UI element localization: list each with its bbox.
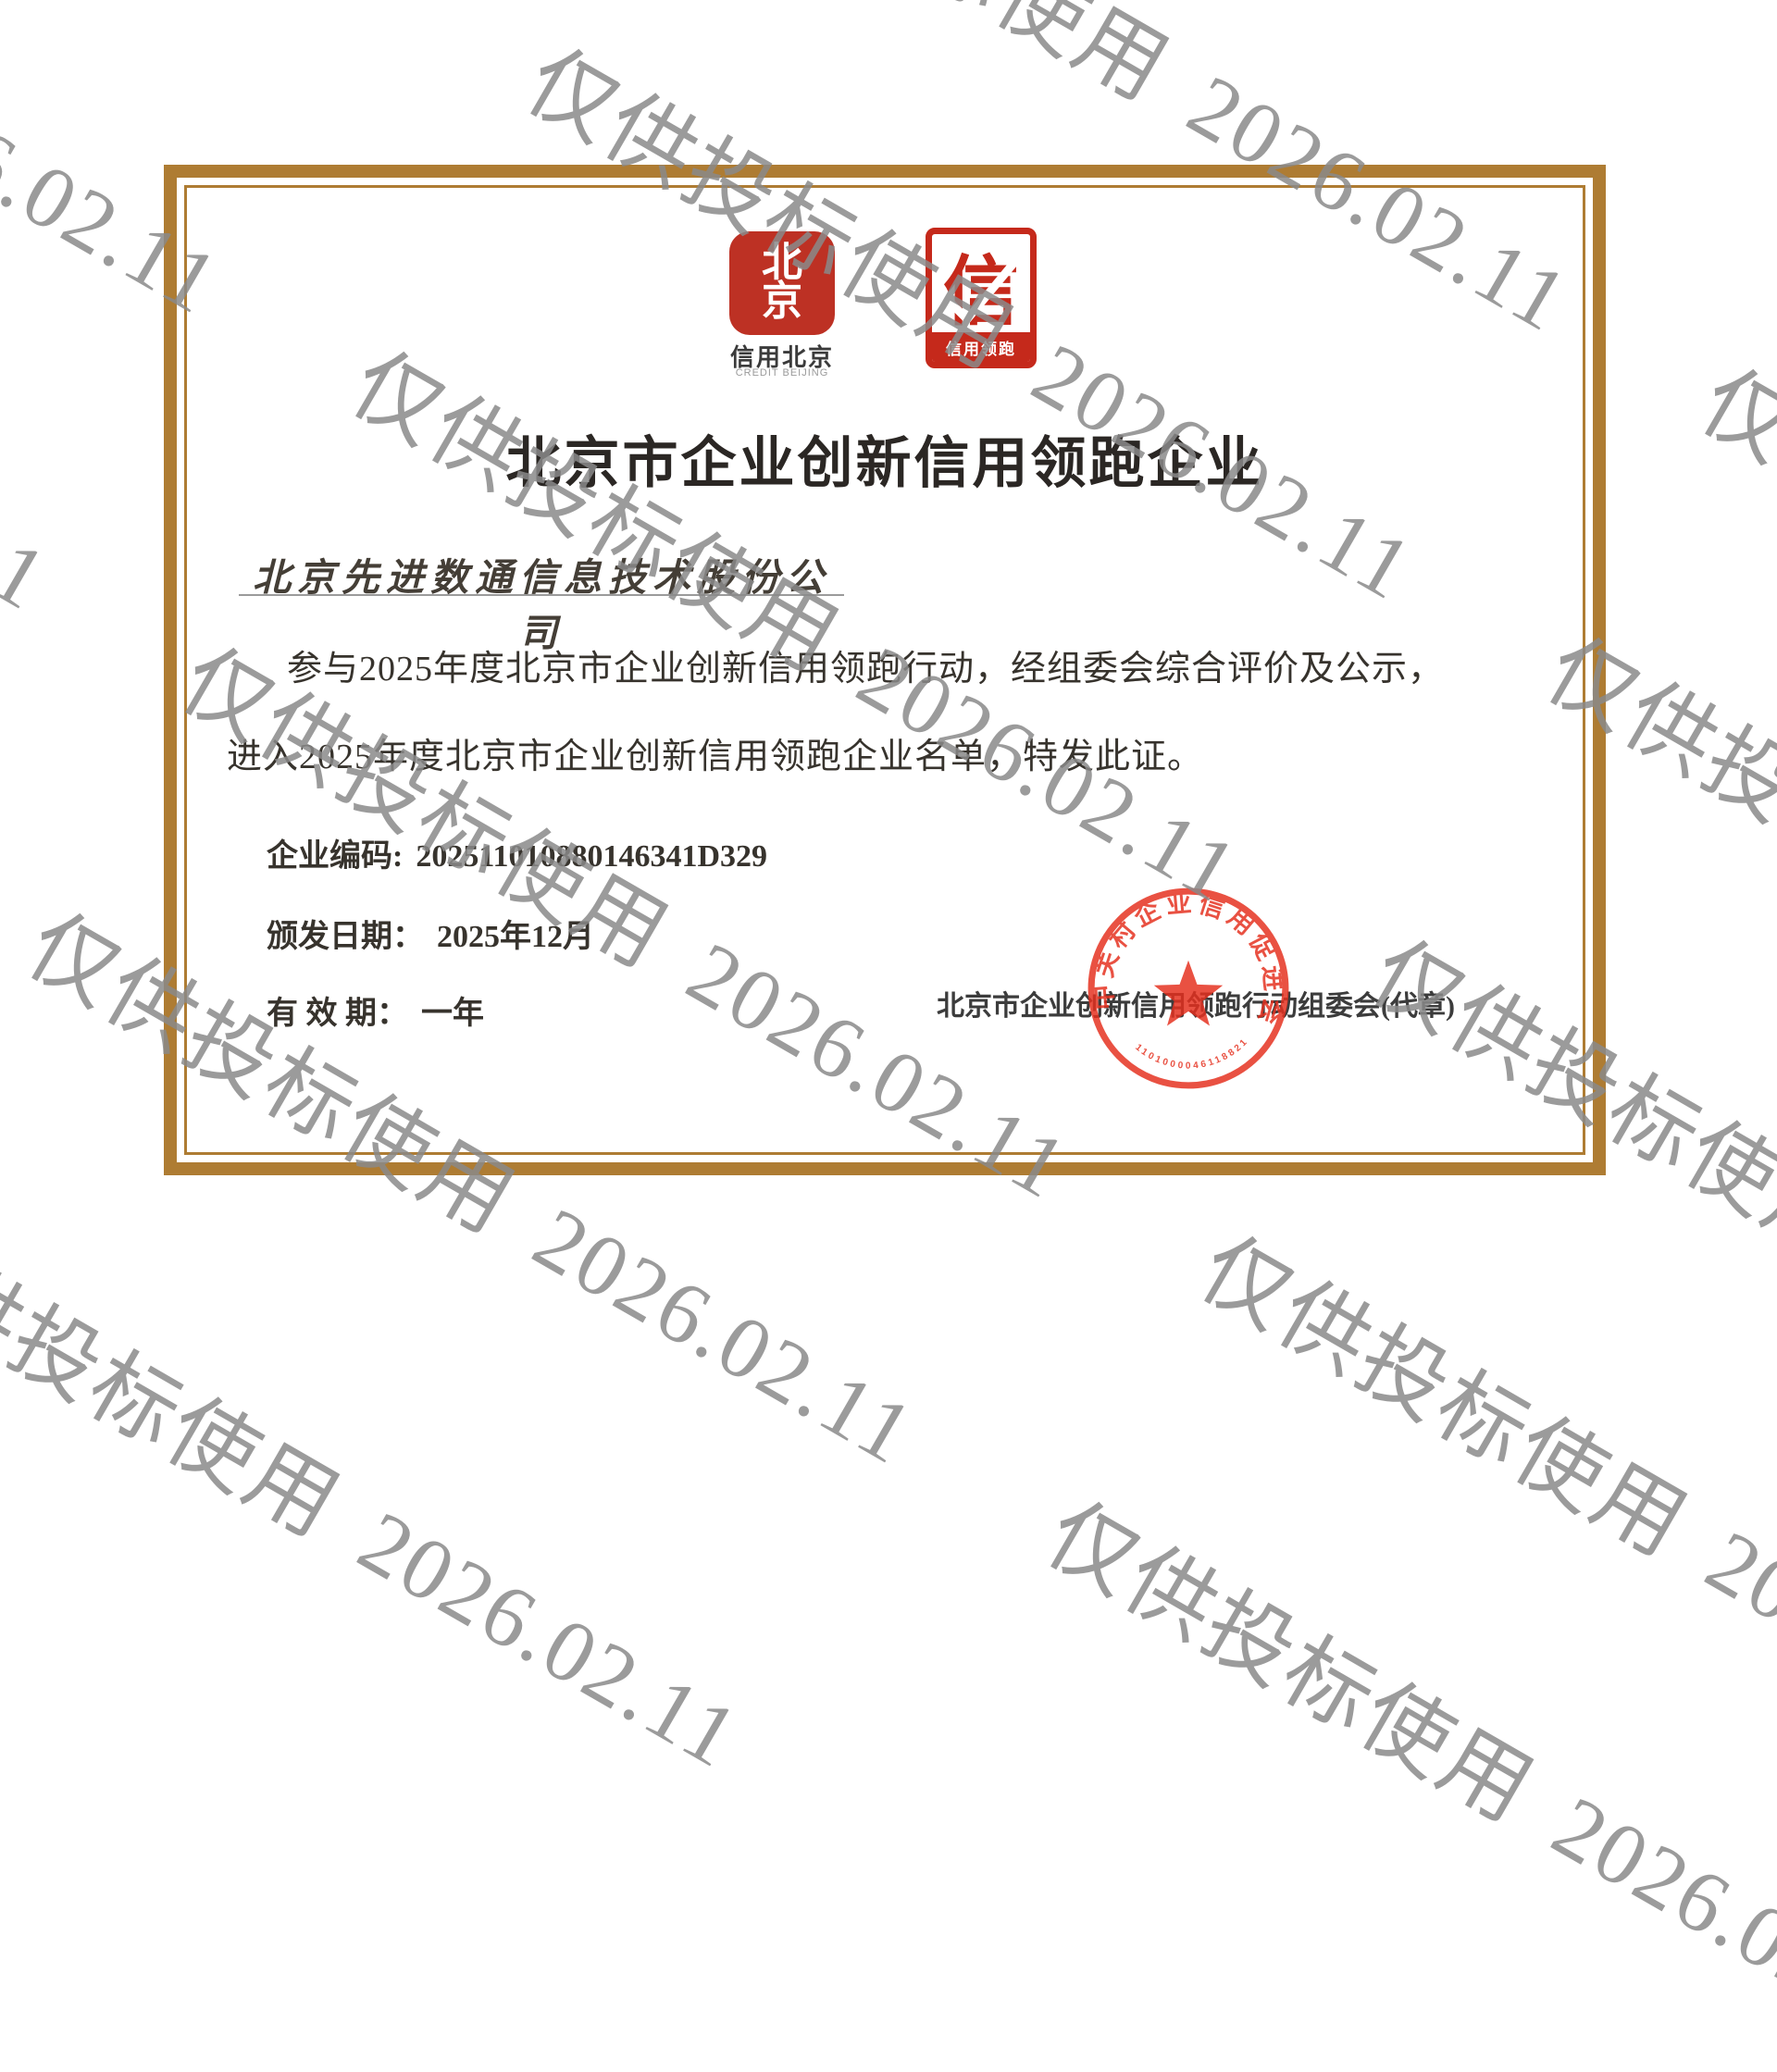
credit-leader-logo-icon: 信 信用领跑: [926, 228, 1037, 368]
enterprise-code-label: 企业编码:: [267, 839, 403, 874]
credit-beijing-logo-icon: 北 京: [729, 231, 835, 335]
credit-leader-label: 信用领跑: [932, 332, 1030, 362]
watermark-text: 仅供投标使用 2026.02.11: [1033, 1489, 1777, 2068]
logo-glyph-top: 北: [762, 244, 802, 281]
watermark-text: 仅供投标使用 2026.02.11: [0, 1204, 753, 1783]
issue-date-value: 2025年12月: [437, 920, 594, 954]
issue-date-label: 颁发日期：: [267, 920, 424, 954]
body-text-line1: 参与2025年度北京市企业创新信用领跑行动，经组委会综合评价及公示，: [287, 639, 1444, 690]
enterprise-code-value: 202511010880146341D329: [416, 839, 767, 874]
seal-serial-number: 1101000046118821: [1133, 1036, 1250, 1071]
credit-beijing-label-en: CREDIT BEIJING: [713, 367, 851, 378]
svg-text:1101000046118821: 1101000046118821: [1133, 1036, 1250, 1071]
certificate-title: 北京市企业创新信用领跑企业: [164, 418, 1606, 499]
logo-glyph-bottom: 京: [762, 281, 802, 322]
validity-value: 一年: [421, 997, 484, 1031]
seal-star-icon: [1154, 961, 1223, 1026]
checkmark-icon: [932, 242, 1030, 334]
company-name-underline: [239, 594, 844, 596]
watermark-text: 仅供投标使用 2026.02.11: [1687, 356, 1777, 936]
issue-date-row: 颁发日期：2025年12月: [267, 911, 594, 956]
enterprise-code-row: 企业编码:202511010880146341D329: [267, 830, 767, 875]
body-text-line2: 进入2025年度北京市企业创新信用领跑企业名单，特发此证。: [227, 727, 1203, 778]
validity-row: 有 效 期：一年: [267, 987, 484, 1033]
watermark-text: 仅供投标使用 2026.02.11: [0, 46, 62, 626]
certificate-page: { "watermark": { "text": "仅供投标使用 2026.02…: [0, 0, 1777, 1334]
official-seal-stamp: 中关村企业信用促进会 1101000046118821: [1081, 881, 1296, 1096]
validity-label: 有 效 期：: [267, 997, 408, 1031]
watermark-text: 仅供投标使用 2026.02.11: [1187, 1223, 1777, 1803]
